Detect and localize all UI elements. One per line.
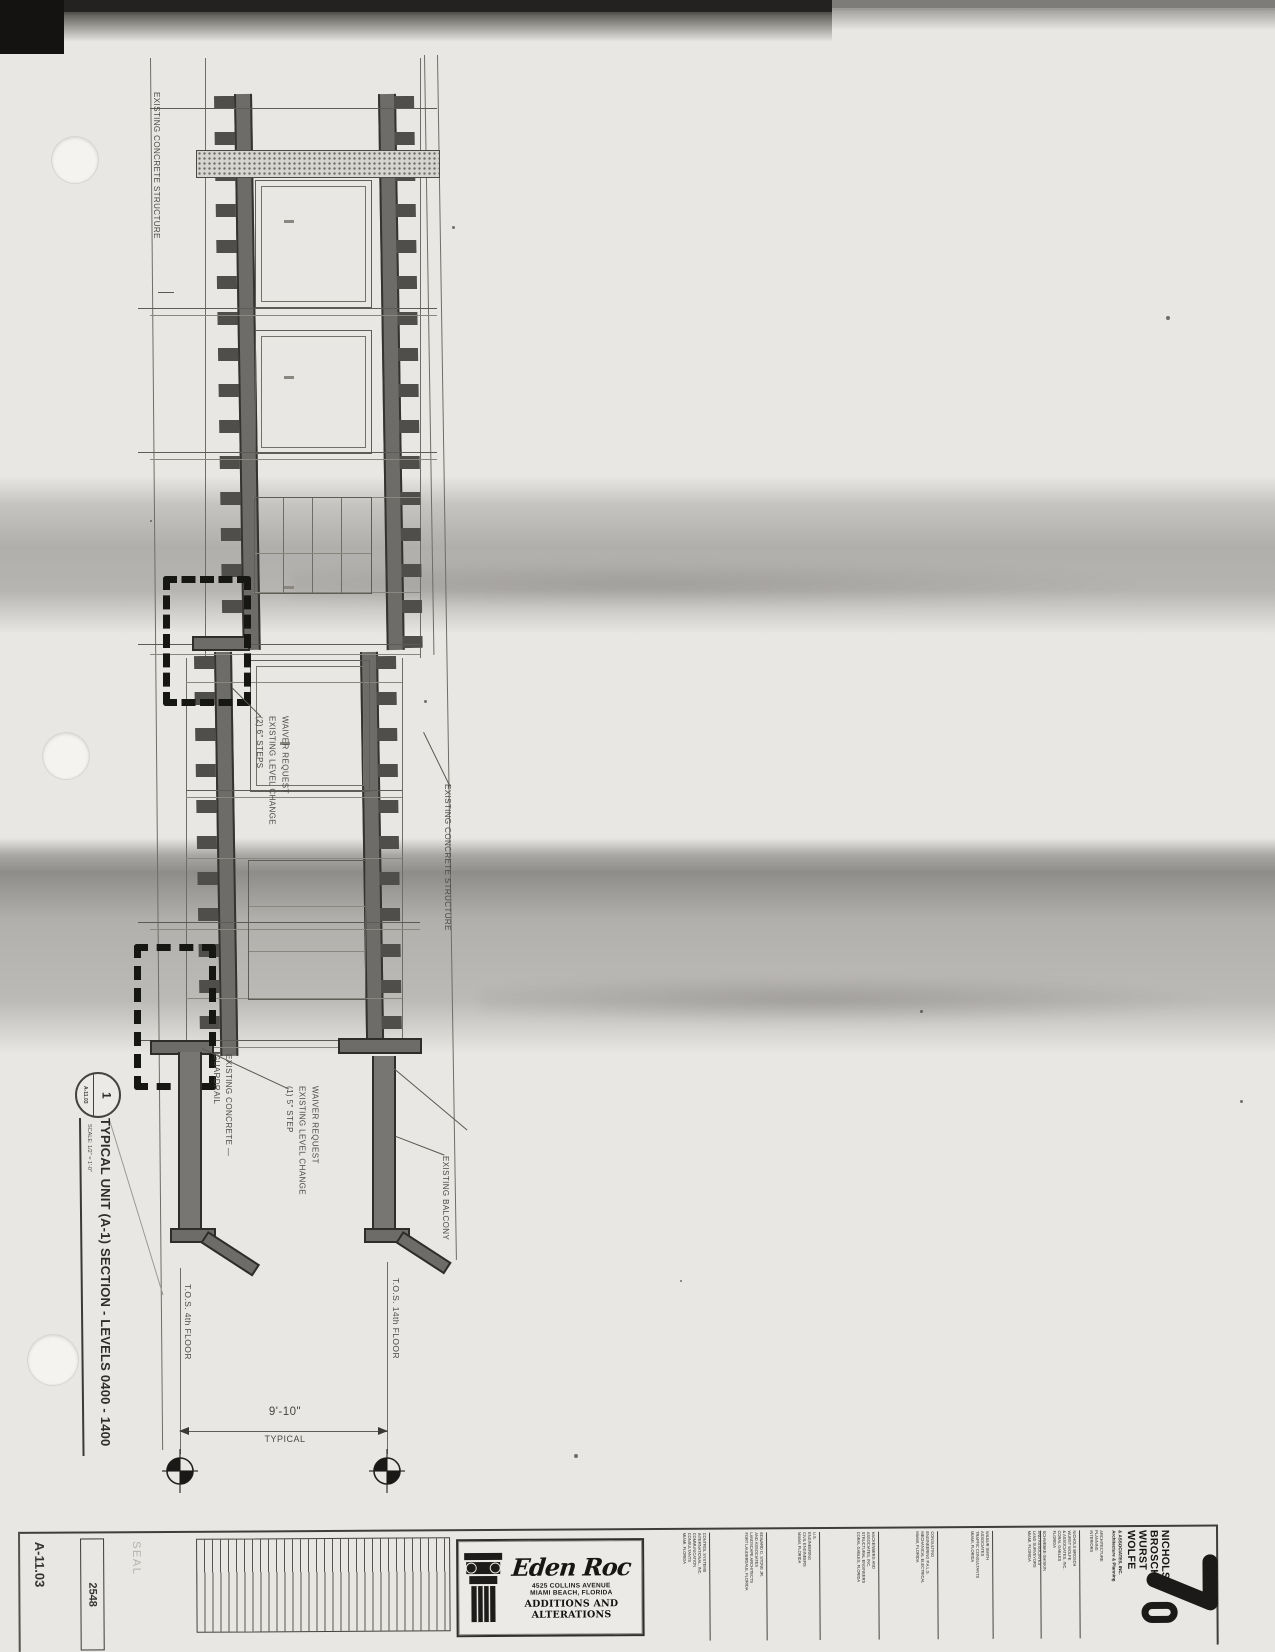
label-tos-14th-floor: T.O.S. 14th FLOOR: [391, 1278, 401, 1408]
detail-bubble: A-11.03 1: [75, 1072, 121, 1118]
dust-speck: [1166, 316, 1170, 320]
dimension-arrow-right: [378, 1427, 388, 1435]
detail-bubble-sheet: A-11.03: [82, 1086, 88, 1104]
louver-mullion: [312, 498, 313, 593]
dimension-arrow-left: [179, 1427, 189, 1435]
title-underline: [79, 1118, 84, 1456]
target-symbol-right: [367, 1449, 407, 1493]
dimension-value: 9'-10": [230, 1406, 340, 1418]
label-existing-concrete-structure-mid: EXISTING CONCRETE STRUCTURE: [443, 784, 452, 1014]
louver-mullion: [283, 498, 284, 593]
guardrail-right: [372, 1056, 396, 1234]
window-inner-frame: [261, 186, 366, 302]
balcony-slab-edge: [338, 1038, 422, 1054]
scan-top-band-fade: [0, 12, 832, 42]
consultant-column: CONTROL SYSTEMS INTERNATIONAL, INC. COMM…: [655, 1533, 710, 1641]
project-number: 2548: [86, 1582, 98, 1607]
title-block-border-left: [18, 1532, 20, 1652]
label-existing-concrete-structure-top: EXISTING CONCRETE STRUCTURE: [152, 92, 161, 297]
window-opening: [255, 180, 372, 308]
revision-grid: [196, 1537, 451, 1633]
window-opening: [248, 860, 366, 1000]
louver-opening: [254, 497, 372, 594]
architect-block: NICHOLS BROSCH WURST WOLFE & ASSOCIATES,…: [1040, 1530, 1171, 1643]
dust-speck: [150, 520, 152, 522]
waiver-callout-box-upper: [163, 576, 251, 706]
slab-line: [186, 797, 402, 798]
scan-top-band-right-fade: [832, 8, 1275, 30]
extension-line-right: [387, 1262, 388, 1454]
drawing-title: TYPICAL UNIT (A-1) SECTION - LEVELS 0400…: [98, 1118, 113, 1463]
guardrail-left-arm: [200, 1231, 260, 1277]
project-name: Eden Roc: [503, 1555, 639, 1580]
wall-face-right-lower: [402, 658, 403, 1050]
scan-gray-band-2-blotch: [480, 975, 1220, 1025]
label-waiver-note-upper: WAIVER REQUEST EXISTING LEVEL CHANGE (2)…: [252, 716, 290, 866]
detail-bubble-number: 1: [100, 1092, 114, 1099]
label-existing-concrete-guardrail: EXISTING CONCRETE — GUARDRAIL: [210, 1054, 234, 1194]
dust-speck: [1240, 1100, 1243, 1103]
scan-corner-black: [0, 0, 64, 54]
project-address-2: MIAMI BEACH, FLORIDA: [504, 1589, 638, 1597]
dust-speck: [920, 1010, 923, 1013]
slab-line: [150, 315, 437, 316]
leader-balcony: [396, 1136, 445, 1156]
window-rail: [249, 906, 365, 907]
consultant-column: HACKENBERG AND ASSOCIATES, INC. STRUCTUR…: [819, 1532, 879, 1640]
title-block-strip: A-11.03 2548 SEAL Eden Roc 4525 COLLINS …: [0, 1524, 1275, 1652]
hole-punch-top: [52, 137, 98, 183]
grid-line-right-outer: [437, 55, 457, 1260]
drawing-scale-note: SCALE: 1/2" = 1'-0": [86, 1124, 92, 1184]
micro-note-smudge: [284, 586, 294, 589]
project-subtitle: ADDITIONS AND ALTERATIONS: [504, 1598, 638, 1621]
consultant-column: U.S. ENGINEERING CIVIL ENGINEERS MIAMI, …: [766, 1532, 820, 1640]
project-identity-box: Eden Roc 4525 COLLINS AVENUE MIAMI BEACH…: [456, 1538, 645, 1637]
consultant-column: CONSULTING ENGINEERING P.A.L.S. MECHANIC…: [878, 1531, 938, 1639]
architect-micro-column: NICHOLS BROSCH WURST WOLFE & ASSOCIATES,…: [1040, 1530, 1080, 1638]
architect-micro-column: ARCHITECTURE PLANNING INTERIORS: [1079, 1530, 1107, 1638]
scanned-sheet: { "drawing": { "labels": { "structure_to…: [0, 0, 1275, 1649]
target-symbol-left: [160, 1449, 200, 1493]
window-opening: [255, 330, 372, 454]
nbww-70-logo-icon: [1141, 1549, 1225, 1628]
leader-structure-mid: [423, 732, 450, 786]
hole-punch-middle: [43, 733, 89, 779]
project-number-box: 2548: [80, 1538, 105, 1650]
consultants-block: CONTROL SYSTEMS INTERNATIONAL, INC. COMM…: [655, 1531, 1050, 1645]
architect-suffix: & ASSOCIATES, INC. Architecture & Planni…: [1110, 1530, 1123, 1630]
wall-face-left-upper: [205, 58, 206, 658]
label-waiver-note-lower: WAIVER REQUEST EXISTING LEVEL CHANGE (1)…: [282, 1086, 320, 1236]
stipple-concrete-band: [196, 150, 440, 178]
sheet-number: A-11.03: [32, 1542, 48, 1642]
column-capital-icon: [462, 1551, 504, 1625]
dust-speck: [680, 1280, 682, 1282]
slab-line: [150, 108, 437, 109]
dimension-note: TYPICAL: [230, 1434, 340, 1444]
dimension-line: [180, 1431, 388, 1432]
label-tos-4th-floor: T.O.S. 4th FLOOR: [183, 1284, 193, 1408]
micro-note-smudge: [284, 220, 294, 223]
balcony-soffit-line: [393, 1068, 467, 1130]
window-inner-frame: [261, 336, 366, 448]
title-leader-line: [109, 1120, 163, 1295]
consultant-column: WILBUR SMITH ASSOCIATES TRAFFIC CONSULTA…: [937, 1531, 993, 1639]
consultant-column: EDWARD D. STONE JR. AND ASSOCIATES LANDS…: [709, 1532, 767, 1640]
dust-speck: [452, 226, 455, 229]
slab-line: [138, 308, 437, 309]
slab-line: [150, 459, 437, 460]
guardrail-left: [178, 1052, 202, 1234]
hole-punch-bottom: [28, 1335, 78, 1385]
louver-rail: [255, 553, 371, 554]
label-existing-balcony: EXISTING BALCONY: [441, 1156, 450, 1266]
architect-logo: [1135, 1544, 1232, 1631]
louver-mullion: [341, 498, 342, 593]
window-rail: [249, 951, 365, 952]
waiver-callout-box-lower: [134, 944, 216, 1090]
slab-line: [186, 858, 402, 859]
seal-label: SEAL: [130, 1541, 142, 1601]
dust-speck: [424, 700, 427, 703]
dust-speck: [574, 1454, 578, 1458]
micro-note-smudge: [284, 376, 294, 379]
